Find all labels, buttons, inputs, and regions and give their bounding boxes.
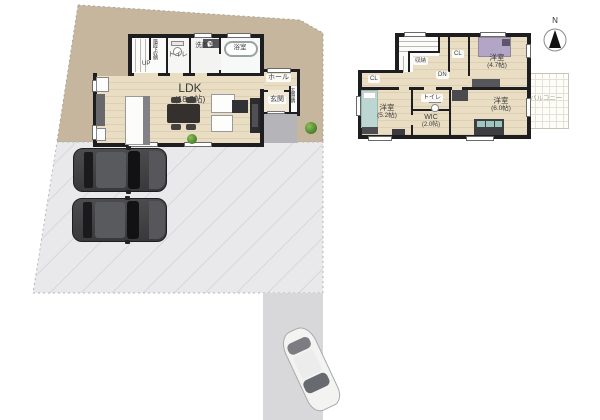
wall-segment — [411, 89, 413, 137]
window — [526, 44, 531, 58]
toilet-fixture — [431, 104, 439, 112]
pillow — [363, 92, 376, 99]
door-opening — [424, 87, 436, 90]
car-hood — [149, 201, 165, 239]
floorplan-canvas: 階段下収納 UP トイレ 洗面室 浴室 ホール 玄関 玄関収納 LDK (18.… — [0, 0, 600, 420]
car-rear-window — [84, 152, 92, 188]
car-windshield — [127, 201, 139, 239]
wic-name: WIC — [413, 114, 449, 122]
toilet-label-f2: トイレ — [421, 94, 443, 102]
wall-segment — [358, 87, 531, 90]
pillow — [486, 121, 494, 127]
wall-segment — [408, 51, 440, 53]
desk — [472, 79, 500, 87]
car-mirror — [125, 240, 130, 244]
car-rear-window — [83, 202, 92, 238]
pillow — [502, 39, 510, 46]
window — [404, 32, 426, 37]
dn-label: DN — [436, 71, 449, 79]
compass-north-label: N — [552, 16, 558, 25]
bedroom47-name: 洋室 — [477, 54, 517, 62]
car-hood — [149, 151, 165, 189]
car-mirror — [125, 196, 130, 200]
pillow — [495, 121, 502, 127]
balcony-label: バルコニー — [530, 95, 562, 103]
stair-treads-f2 — [399, 37, 439, 56]
car-suv-2 — [72, 198, 167, 242]
car-mirror — [126, 190, 131, 194]
storage-label: 収納 — [413, 57, 428, 65]
cl-left-label: CL — [368, 75, 380, 83]
wic-label: WIC (2.0帖) — [413, 114, 449, 129]
bedroom52-label: 洋室 (5.2帖) — [366, 104, 408, 119]
wall-segment — [449, 89, 451, 137]
door-opening — [468, 76, 470, 87]
wic-size: (2.0帖) — [413, 122, 449, 129]
bedroom52-size: (5.2帖) — [366, 112, 408, 119]
dresser — [362, 127, 378, 134]
bedroom60-label: 洋室 (6.0帖) — [480, 97, 522, 112]
bedroom47-label: 洋室 (4.7帖) — [477, 54, 517, 69]
bedroom60-size: (6.0帖) — [480, 105, 522, 112]
car-roof — [96, 152, 126, 188]
bedroom47-size: (4.7帖) — [477, 62, 517, 69]
bedroom60-name: 洋室 — [480, 97, 522, 105]
window — [466, 136, 494, 141]
bedroom52-name: 洋室 — [366, 104, 408, 112]
cl-top-label: CL — [452, 50, 464, 58]
dresser — [452, 90, 468, 101]
wall-segment — [408, 51, 410, 72]
wall-segment — [438, 35, 440, 53]
pillow — [477, 121, 485, 127]
wall-segment — [395, 33, 399, 73]
chair — [392, 129, 405, 135]
car-roof — [95, 202, 125, 238]
door-opening — [399, 87, 409, 90]
wall-segment — [448, 35, 450, 72]
car-mirror — [126, 146, 131, 150]
car-windshield — [128, 151, 140, 189]
window — [368, 136, 392, 141]
compass: N — [536, 14, 574, 56]
car-suv-1 — [73, 148, 167, 192]
